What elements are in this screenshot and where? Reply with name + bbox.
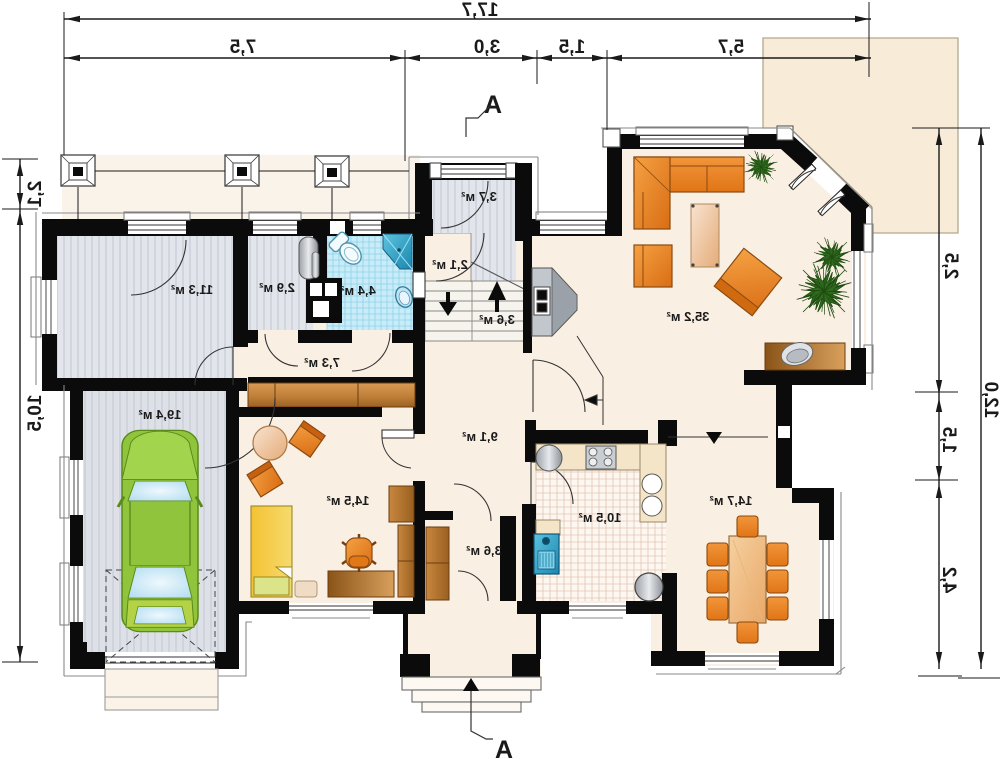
svg-text:9,1 м²: 9,1 м² [462,429,498,444]
svg-text:7,5: 7,5 [229,37,256,58]
svg-text:3,7 м²: 3,7 м² [461,189,497,204]
svg-text:2,1 м²: 2,1 м² [432,257,468,272]
svg-text:35,2 м²: 35,2 м² [666,309,710,324]
svg-text:10,5: 10,5 [25,395,46,432]
svg-text:2,9 м²: 2,9 м² [259,280,295,295]
svg-text:7,3 м²: 7,3 м² [304,355,340,370]
svg-text:19,4 м²: 19,4 м² [138,407,182,422]
svg-text:1,5: 1,5 [558,37,585,58]
svg-text:3,0: 3,0 [474,37,500,58]
svg-text:17,7: 17,7 [462,0,499,21]
svg-text:4,4 м²: 4,4 м² [340,283,376,298]
svg-text:A: A [484,91,502,119]
svg-text:3,6 м²: 3,6 м² [466,543,502,558]
svg-text:2,5: 2,5 [940,252,961,279]
svg-text:11,3 м²: 11,3 м² [170,282,213,297]
svg-text:14,5 м²: 14,5 м² [326,493,370,508]
svg-text:12,0: 12,0 [980,382,1000,419]
svg-text:3,6 м²: 3,6 м² [479,312,515,327]
svg-text:14,7 м²: 14,7 м² [709,493,753,508]
svg-text:10,5 м²: 10,5 м² [578,510,622,525]
svg-text:4,2: 4,2 [938,567,959,593]
svg-text:5,7: 5,7 [718,37,744,58]
svg-text:A: A [495,736,513,759]
svg-text:2,1: 2,1 [25,181,46,208]
svg-text:1,5: 1,5 [938,426,959,453]
